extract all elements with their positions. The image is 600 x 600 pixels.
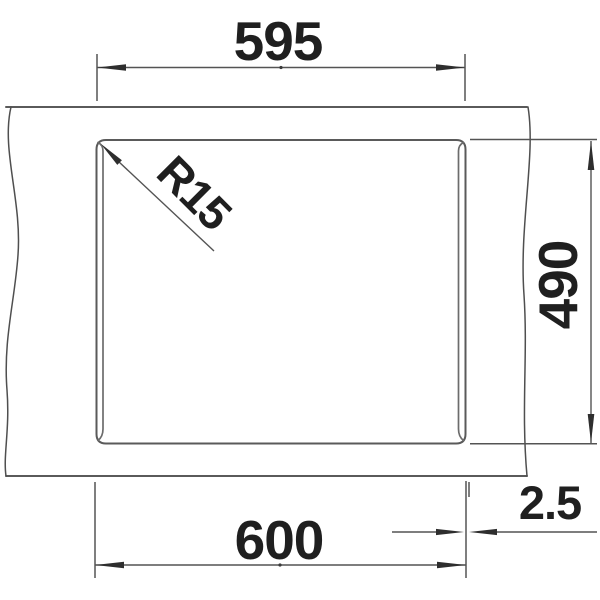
break-line-left: [5, 107, 18, 476]
dim-edge-offset-arrow-right: [469, 529, 497, 535]
bowl-inner-edge-left: [98, 143, 103, 441]
dim-depth-arrow-bottom: [588, 414, 595, 443]
dim-overall-width-arrow-right: [437, 562, 466, 569]
dim-edge-offset-label: 2.5: [519, 476, 581, 529]
dim-edge-offset-arrow-left: [436, 529, 464, 535]
technical-drawing-canvas: 595 490 600 2.5 R15: [0, 0, 600, 600]
sink-dimension-drawing: 595 490 600 2.5 R15: [0, 0, 600, 600]
dim-depth-label: 490: [527, 241, 589, 330]
dim-overall-width-arrow-left: [95, 562, 124, 569]
radius-callout-label: R15: [147, 146, 242, 241]
dim-cutout-width-arrow-left: [97, 64, 126, 71]
dim-cutout-width-arrow-right: [436, 64, 465, 71]
dim-depth-arrow-top: [588, 141, 595, 170]
bowl-inner-edge-right: [459, 143, 464, 441]
dim-cutout-width-label: 595: [234, 10, 323, 72]
dim-overall-width-label: 600: [235, 509, 324, 571]
